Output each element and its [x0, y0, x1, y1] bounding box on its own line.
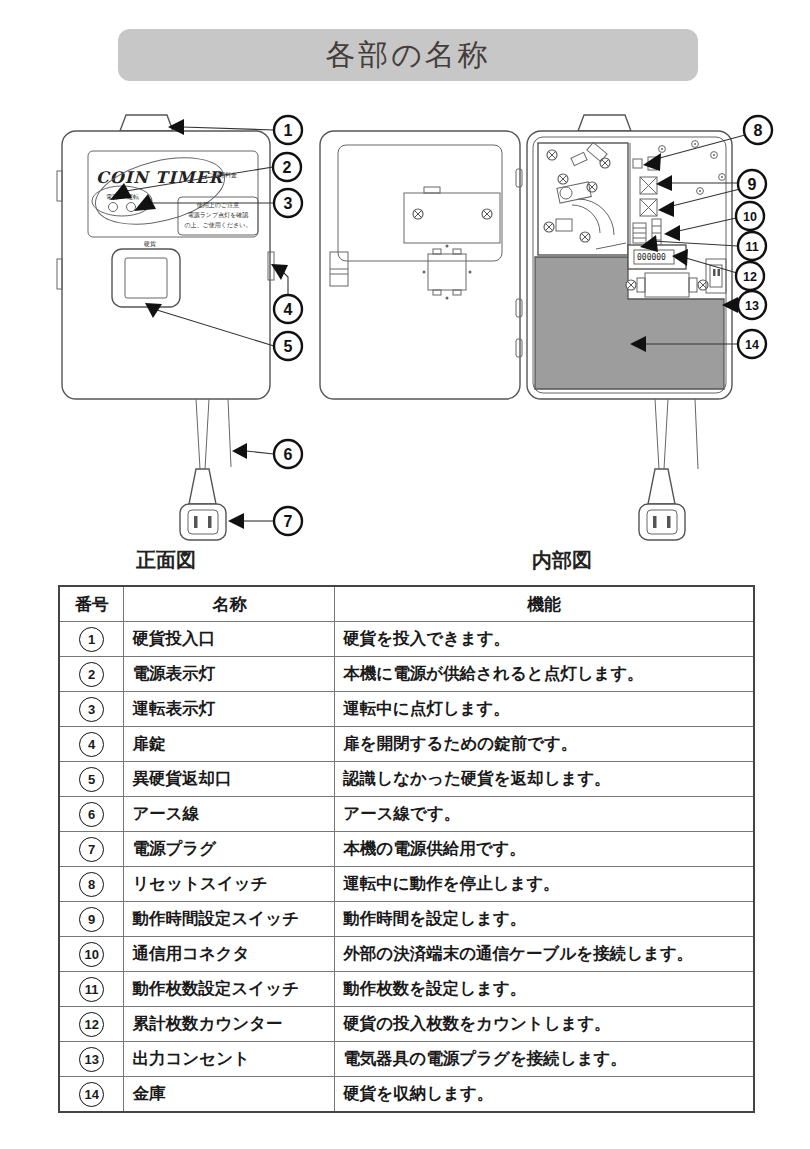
- table-row: 3運転表示灯運転中に点灯します。: [59, 692, 754, 727]
- parts-table: 番号 名称 機能 1硬貨投入口硬貨を投入できます。 2電源表示灯本機に電源が供給…: [58, 585, 755, 1113]
- row-number: 12: [79, 1012, 104, 1037]
- part-function: 動作時間を設定します。: [335, 902, 754, 937]
- svg-text:1: 1: [284, 122, 293, 139]
- earth-wire: [695, 399, 698, 469]
- plug-prong: [667, 516, 671, 528]
- part-name: 通信用コネクタ: [124, 937, 335, 972]
- power-plug: [180, 504, 226, 540]
- row-number: 5: [79, 767, 104, 792]
- table-row: 14金庫硬貨を収納します。: [59, 1077, 754, 1113]
- table-row: 7電源プラグ本機の電源供給用です。: [59, 832, 754, 867]
- callout-3: 3: [274, 189, 302, 217]
- row-number: 10: [79, 942, 104, 967]
- coin-slot-top: [578, 115, 631, 131]
- dot: [446, 297, 449, 300]
- svg-text:4: 4: [284, 301, 293, 318]
- earth-wire: [228, 399, 231, 467]
- svg-text:8: 8: [754, 122, 763, 139]
- parts-diagram: COIN TIMER ご利用料金 電源 運転 使用上のご注意 電源ランプ点灯を確…: [0, 98, 810, 580]
- table-row: 1硬貨投入口硬貨を投入できます。: [59, 622, 754, 657]
- part-name: 異硬貨返却口: [124, 762, 335, 797]
- table-row: 13出力コンセント電気器具の電源プラグを接続します。: [59, 1042, 754, 1077]
- hinge-tab: [57, 259, 62, 289]
- power-cord: [196, 399, 200, 469]
- part-name: リセットスイッチ: [124, 867, 335, 902]
- part-function: 運転中に点灯します。: [335, 692, 754, 727]
- header-name: 名称: [124, 586, 335, 622]
- table-row: 5異硬貨返却口認識しなかった硬貨を返却します。: [59, 762, 754, 797]
- svg-text:12: 12: [743, 270, 757, 284]
- front-view: COIN TIMER ご利用料金 電源 運転 使用上のご注意 電源ランプ点灯を確…: [57, 115, 274, 571]
- svg-text:9: 9: [748, 176, 757, 193]
- open-door: [320, 131, 520, 399]
- callout-1: 1: [274, 116, 302, 144]
- slot-label: 硬貨: [143, 240, 156, 248]
- coin-mechanism: [538, 142, 628, 255]
- part-function: 運転中に動作を停止します。: [335, 867, 754, 902]
- counter-display: 000000: [637, 253, 666, 262]
- row-number: 11: [79, 977, 104, 1002]
- part-function: 外部の決済端末の通信ケーブルを接続します。: [335, 937, 754, 972]
- part-function: 動作枚数を設定します。: [335, 972, 754, 1007]
- power-plug: [639, 504, 685, 540]
- plug-prong: [653, 516, 657, 528]
- table-row: 6アース線アース線です。: [59, 797, 754, 832]
- part-function: 扉を開閉するための錠前です。: [335, 727, 754, 762]
- callout-10: 10: [736, 202, 764, 230]
- row-number: 6: [79, 802, 104, 827]
- row-number: 14: [79, 1082, 104, 1107]
- svg-text:7: 7: [284, 513, 293, 530]
- table-row: 12累計枚数カウンター硬貨の投入枚数をカウントします。: [59, 1007, 754, 1042]
- table-header-row: 番号 名称 機能: [59, 586, 754, 622]
- page-title: 各部の名称: [325, 35, 491, 76]
- front-view-caption: 正面図: [135, 549, 196, 571]
- svg-text:14: 14: [745, 338, 759, 352]
- svg-text:2: 2: [283, 159, 292, 176]
- part-function: 硬貨の投入枚数をカウントします。: [335, 1007, 754, 1042]
- callout-14: 14: [738, 330, 766, 358]
- table-row: 4扉錠扉を開閉するための錠前です。: [59, 727, 754, 762]
- outlet-slot: [718, 269, 721, 276]
- callout-13: 13: [738, 291, 766, 319]
- callout-12: 12: [736, 262, 764, 290]
- svg-text:11: 11: [745, 240, 758, 254]
- row-number: 1: [79, 627, 104, 652]
- callout-6: 6: [274, 440, 302, 468]
- plug-prong: [194, 516, 198, 528]
- callout-2: 2: [273, 153, 301, 181]
- coin-slot-top: [120, 115, 173, 131]
- dot: [423, 271, 426, 274]
- part-name: 電源表示灯: [124, 657, 335, 692]
- row-number: 7: [79, 837, 104, 862]
- part-name: 金庫: [124, 1077, 335, 1113]
- svg-text:10: 10: [743, 210, 757, 224]
- table-row: 2電源表示灯本機に電源が供給されると点灯します。: [59, 657, 754, 692]
- part-function: 硬貨を収納します。: [335, 1077, 754, 1113]
- svg-text:3: 3: [284, 195, 293, 212]
- part-name: 動作時間設定スイッチ: [124, 902, 335, 937]
- header-function: 機能: [335, 586, 754, 622]
- part-function: 本機に電源が供給されると点灯します。: [335, 657, 754, 692]
- svg-text:13: 13: [745, 299, 759, 313]
- table-row: 9動作時間設定スイッチ動作時間を設定します。: [59, 902, 754, 937]
- header-number: 番号: [59, 586, 124, 622]
- table-row: 11動作枚数設定スイッチ動作枚数を設定します。: [59, 972, 754, 1007]
- row-number: 2: [79, 662, 104, 687]
- callout-8: 8: [744, 116, 772, 144]
- plug-neck: [648, 469, 675, 504]
- row-number: 4: [79, 732, 104, 757]
- row-number: 13: [79, 1047, 104, 1072]
- row-number: 8: [79, 872, 104, 897]
- notice-line1: 電源ランプ点灯を確認: [188, 211, 250, 219]
- callout-7: 7: [274, 507, 302, 535]
- callout-11: 11: [738, 232, 766, 260]
- plug-neck: [189, 469, 216, 504]
- svg-text:5: 5: [284, 338, 293, 355]
- plug-prong: [208, 516, 212, 528]
- parts-table-container: 番号 名称 機能 1硬貨投入口硬貨を投入できます。 2電源表示灯本機に電源が供給…: [58, 585, 755, 1113]
- part-function: 本機の電源供給用です。: [335, 832, 754, 867]
- page-title-bar: 各部の名称: [118, 29, 698, 81]
- internal-view-caption: 内部図: [532, 549, 592, 571]
- part-name: 硬貨投入口: [124, 622, 335, 657]
- row-number: 3: [79, 697, 104, 722]
- table-row: 10通信用コネクタ外部の決済端末の通信ケーブルを接続します。: [59, 937, 754, 972]
- power-cord: [655, 399, 659, 469]
- hinge-tab: [57, 171, 62, 201]
- part-function: 認識しなかった硬貨を返却します。: [335, 762, 754, 797]
- svg-text:6: 6: [284, 446, 293, 463]
- part-name: 動作枚数設定スイッチ: [124, 972, 335, 1007]
- part-name: アース線: [124, 797, 335, 832]
- part-name: 運転表示灯: [124, 692, 335, 727]
- row-number: 9: [79, 907, 104, 932]
- power-cord: [205, 399, 209, 469]
- part-function: 硬貨を投入できます。: [335, 622, 754, 657]
- callout-9: 9: [738, 170, 766, 198]
- dot: [469, 271, 472, 274]
- notice-line2: の上、ご使用ください。: [185, 222, 252, 229]
- table-row: 8リセットスイッチ運転中に動作を停止します。: [59, 867, 754, 902]
- manual-page: 各部の名称 COIN TIMER ご利用料金 電源 運転: [0, 0, 810, 1149]
- outlet-slot: [713, 269, 716, 276]
- part-function: アース線です。: [335, 797, 754, 832]
- part-name: 扉錠: [124, 727, 335, 762]
- callout-4: 4: [274, 295, 302, 323]
- part-name: 電源プラグ: [124, 832, 335, 867]
- part-name: 出力コンセント: [124, 1042, 335, 1077]
- power-cord: [664, 399, 668, 469]
- part-name: 累計枚数カウンター: [124, 1007, 335, 1042]
- part-function: 電気器具の電源プラグを接続します。: [335, 1042, 754, 1077]
- dot: [446, 245, 449, 248]
- notice-title: 使用上のご注意: [197, 201, 239, 209]
- callout-5: 5: [274, 332, 302, 360]
